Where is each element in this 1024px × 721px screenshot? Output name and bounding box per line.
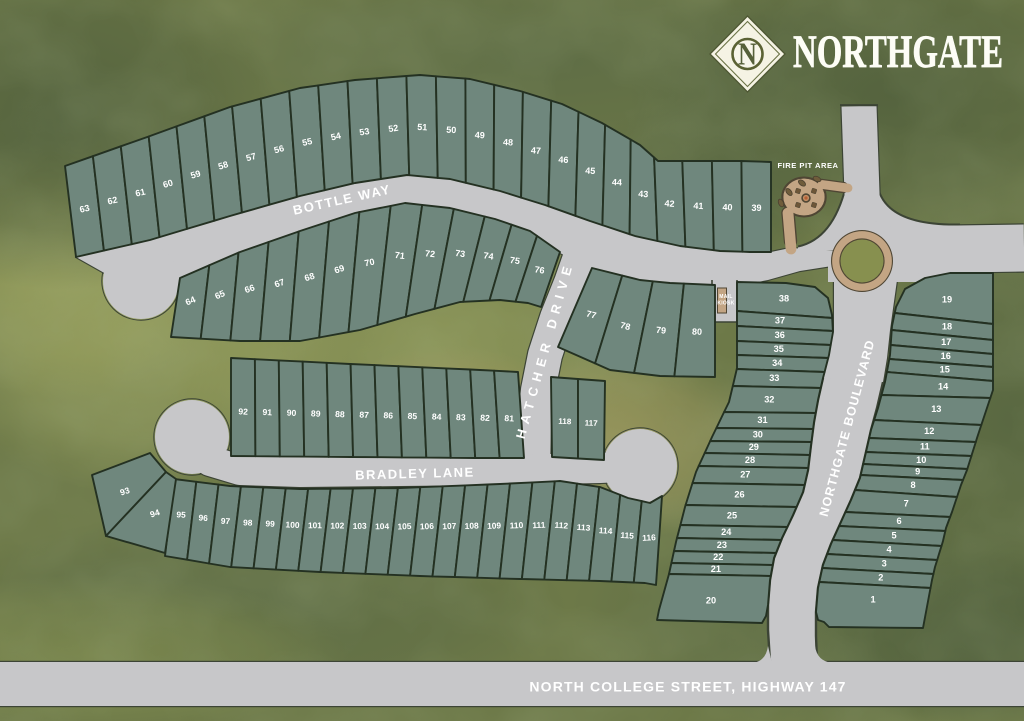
svg-text:88: 88: [335, 409, 345, 419]
svg-text:40: 40: [722, 202, 732, 212]
svg-text:14: 14: [938, 381, 949, 391]
svg-text:20: 20: [706, 595, 716, 605]
svg-text:9: 9: [915, 467, 920, 477]
svg-text:104: 104: [375, 521, 389, 531]
svg-text:98: 98: [243, 517, 253, 527]
svg-text:79: 79: [656, 325, 667, 336]
svg-text:109: 109: [487, 520, 502, 531]
svg-text:17: 17: [941, 337, 951, 347]
svg-text:49: 49: [475, 130, 486, 141]
svg-text:41: 41: [693, 201, 704, 212]
svg-text:73: 73: [455, 248, 466, 259]
svg-text:101: 101: [308, 520, 322, 530]
svg-text:105: 105: [397, 521, 412, 532]
svg-text:15: 15: [940, 365, 950, 375]
svg-text:32: 32: [764, 394, 774, 404]
svg-text:2: 2: [878, 573, 883, 583]
svg-text:NORTH COLLEGE STREET, HIGHWAY: NORTH COLLEGE STREET, HIGHWAY 147: [529, 679, 846, 695]
svg-text:53: 53: [359, 126, 370, 137]
svg-text:38: 38: [779, 293, 789, 303]
svg-text:21: 21: [711, 564, 721, 574]
svg-text:81: 81: [504, 413, 514, 423]
svg-text:50: 50: [446, 125, 457, 136]
svg-text:KIOSK: KIOSK: [717, 301, 734, 307]
svg-text:BRADLEY LANE: BRADLEY LANE: [355, 464, 475, 482]
svg-text:23: 23: [717, 540, 727, 550]
svg-text:85: 85: [407, 411, 417, 421]
svg-text:37: 37: [775, 316, 785, 326]
svg-text:74: 74: [483, 250, 494, 261]
svg-text:80: 80: [692, 326, 702, 336]
svg-text:28: 28: [745, 455, 755, 465]
svg-text:7: 7: [904, 499, 909, 509]
svg-text:76: 76: [534, 264, 545, 275]
svg-text:52: 52: [388, 123, 399, 134]
svg-text:35: 35: [774, 344, 784, 354]
svg-text:10: 10: [916, 455, 926, 465]
svg-text:1: 1: [870, 594, 875, 604]
svg-text:31: 31: [757, 415, 767, 425]
svg-text:16: 16: [941, 351, 951, 361]
svg-text:5: 5: [892, 530, 897, 540]
svg-text:115: 115: [620, 530, 635, 541]
svg-text:13: 13: [931, 404, 941, 414]
svg-text:90: 90: [287, 408, 297, 418]
svg-text:100: 100: [285, 519, 300, 530]
svg-text:110: 110: [509, 520, 523, 531]
svg-text:114: 114: [598, 525, 613, 536]
svg-text:34: 34: [772, 358, 783, 368]
svg-text:82: 82: [480, 413, 490, 423]
svg-text:70: 70: [364, 257, 376, 269]
svg-text:12: 12: [924, 426, 934, 436]
svg-text:103: 103: [353, 521, 367, 531]
svg-text:108: 108: [464, 520, 479, 531]
svg-text:11: 11: [920, 442, 930, 452]
svg-text:47: 47: [531, 145, 542, 156]
svg-text:4: 4: [886, 545, 892, 555]
svg-text:3: 3: [882, 559, 887, 569]
svg-text:6: 6: [897, 516, 902, 526]
svg-text:99: 99: [265, 518, 275, 528]
svg-text:N: N: [738, 37, 757, 72]
svg-text:24: 24: [721, 527, 732, 537]
svg-text:36: 36: [775, 330, 785, 340]
svg-text:75: 75: [509, 255, 520, 266]
svg-text:43: 43: [638, 189, 649, 200]
svg-text:87: 87: [359, 410, 369, 420]
svg-text:51: 51: [417, 122, 428, 133]
svg-text:44: 44: [612, 177, 623, 188]
svg-text:84: 84: [432, 411, 442, 421]
svg-text:72: 72: [425, 248, 436, 259]
svg-text:71: 71: [394, 250, 405, 261]
svg-text:112: 112: [554, 520, 569, 531]
svg-text:45: 45: [585, 166, 596, 177]
svg-text:29: 29: [749, 442, 759, 452]
svg-text:102: 102: [330, 520, 344, 530]
svg-text:89: 89: [311, 408, 321, 418]
svg-text:18: 18: [942, 322, 952, 332]
svg-text:111: 111: [532, 520, 546, 531]
svg-text:118: 118: [558, 417, 572, 426]
svg-text:86: 86: [383, 410, 393, 420]
svg-text:92: 92: [238, 406, 248, 416]
svg-text:39: 39: [751, 203, 761, 213]
svg-text:107: 107: [442, 521, 457, 532]
svg-text:106: 106: [420, 521, 435, 532]
svg-text:25: 25: [727, 510, 737, 520]
svg-text:MAIL: MAIL: [719, 294, 732, 300]
svg-text:113: 113: [576, 522, 591, 533]
svg-text:83: 83: [456, 412, 466, 422]
svg-text:27: 27: [740, 470, 750, 480]
svg-text:97: 97: [220, 516, 230, 527]
svg-text:33: 33: [769, 373, 779, 383]
svg-text:91: 91: [262, 407, 272, 417]
svg-text:NORTHGATE: NORTHGATE: [793, 26, 1003, 78]
svg-text:95: 95: [176, 509, 186, 520]
svg-text:48: 48: [503, 137, 514, 148]
svg-text:30: 30: [753, 429, 763, 439]
svg-text:FIRE PIT AREA: FIRE PIT AREA: [777, 161, 838, 170]
svg-text:22: 22: [713, 552, 723, 562]
svg-text:116: 116: [642, 532, 656, 543]
svg-text:19: 19: [942, 294, 952, 304]
svg-text:42: 42: [664, 198, 675, 209]
svg-text:117: 117: [585, 418, 599, 427]
svg-text:46: 46: [558, 155, 569, 166]
svg-text:96: 96: [198, 512, 208, 523]
svg-text:8: 8: [911, 480, 916, 490]
svg-text:26: 26: [734, 489, 744, 499]
